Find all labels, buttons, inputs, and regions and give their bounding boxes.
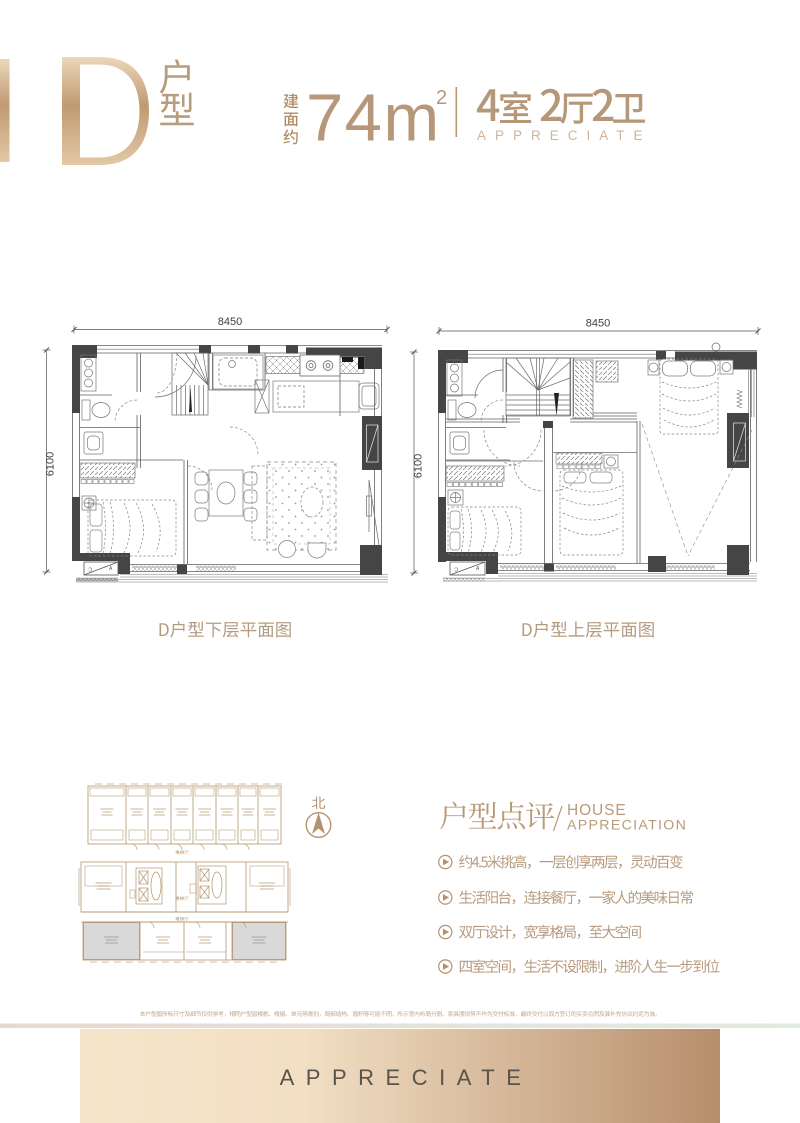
svg-text:APPRECIATION: APPRECIATION: [567, 818, 687, 834]
svg-text:2: 2: [436, 87, 447, 109]
svg-text:8450: 8450: [586, 318, 610, 330]
svg-text:APPRECIATE: APPRECIATE: [477, 128, 652, 143]
svg-text:6100: 6100: [45, 452, 57, 476]
svg-text:74m: 74m: [306, 81, 441, 156]
svg-text:APPRECIATE: APPRECIATE: [280, 1065, 533, 1090]
svg-text:C: C: [88, 566, 92, 572]
svg-text:6100: 6100: [413, 454, 425, 478]
svg-text:8450: 8450: [218, 316, 242, 328]
svg-text:HOUSE: HOUSE: [567, 802, 627, 819]
svg-text:C: C: [454, 566, 458, 572]
